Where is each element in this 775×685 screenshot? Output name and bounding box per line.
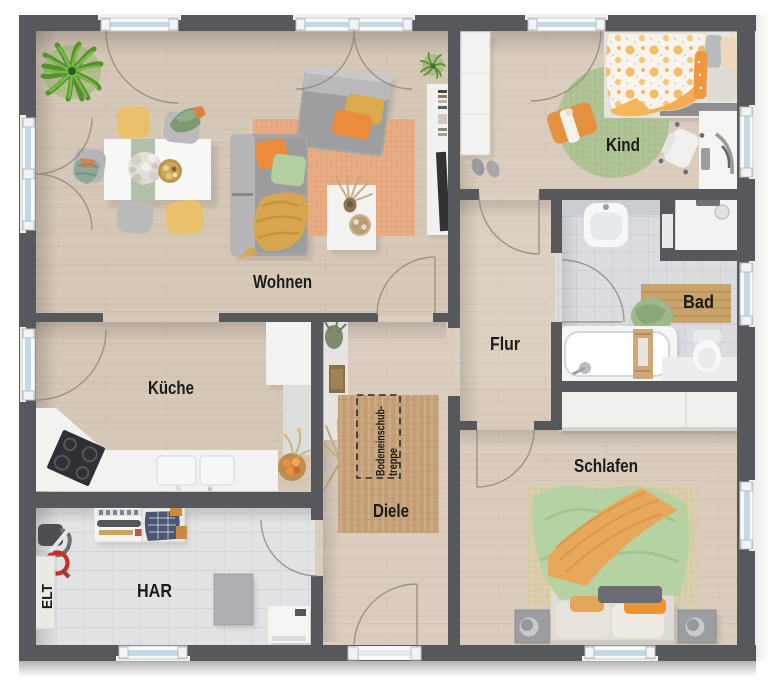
svg-text:treppe: treppe — [386, 448, 400, 476]
svg-text:Diele: Diele — [373, 501, 409, 521]
svg-text:Kind: Kind — [606, 135, 640, 155]
svg-text:Flur: Flur — [490, 334, 520, 354]
svg-text:HAR: HAR — [137, 581, 172, 601]
svg-text:Küche: Küche — [148, 378, 194, 398]
svg-text:ELT: ELT — [39, 584, 56, 609]
svg-text:Wohnen: Wohnen — [253, 272, 312, 292]
svg-text:Schlafen: Schlafen — [574, 456, 638, 476]
svg-text:Bad: Bad — [683, 292, 714, 312]
